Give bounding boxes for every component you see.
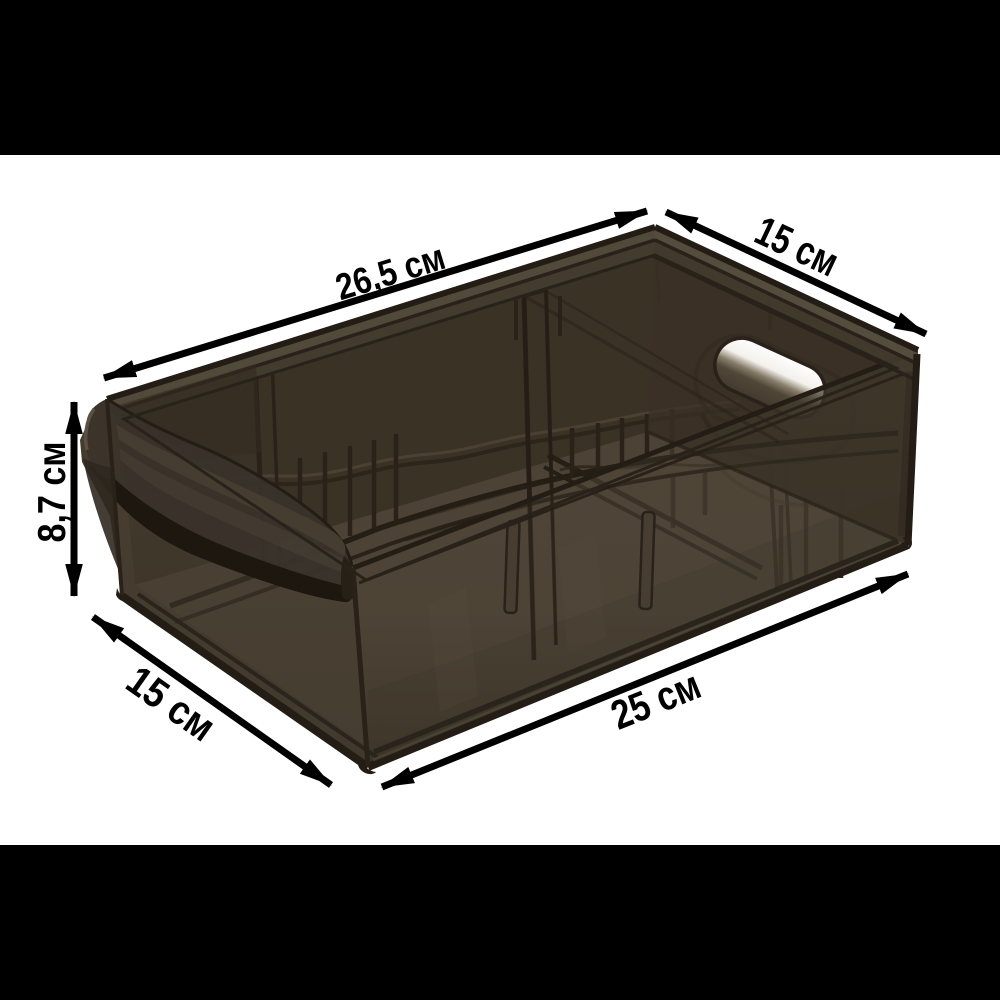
svg-text:8,7 см: 8,7 см: [31, 442, 74, 543]
